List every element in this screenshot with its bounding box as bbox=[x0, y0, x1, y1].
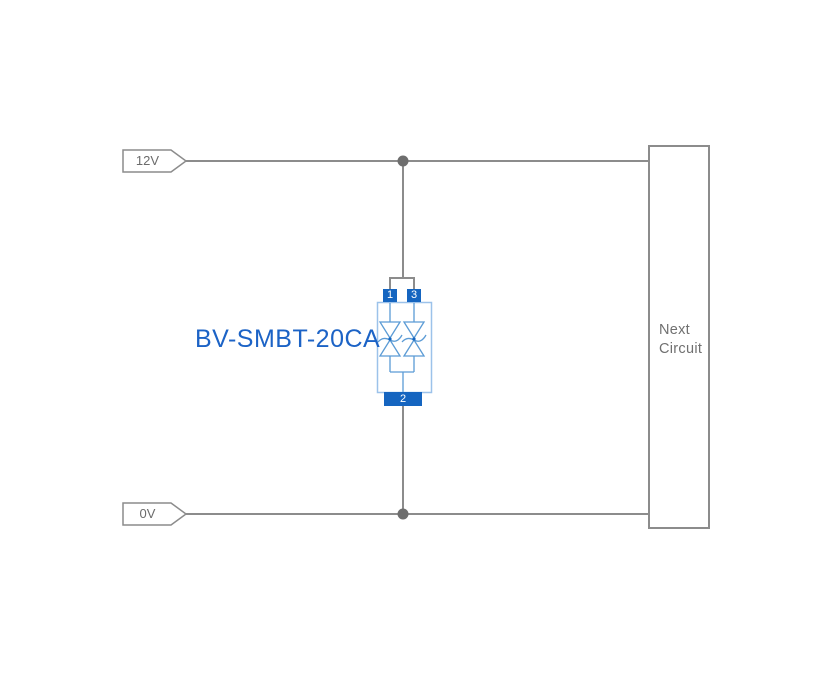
diode-left-junction bbox=[388, 337, 391, 340]
pin2-number: 2 bbox=[384, 392, 422, 406]
next-circuit-label-line2: Circuit bbox=[659, 340, 702, 359]
diode-right-junction bbox=[412, 337, 415, 340]
next-circuit-label: Next Circuit bbox=[659, 321, 702, 359]
circuit-diagram: 12V 0V BV-SMBT-20CA 1 3 2 Next Circuit bbox=[0, 0, 832, 675]
junction-dot-bottom bbox=[398, 509, 409, 520]
rail-label-12v: 12V bbox=[123, 150, 172, 172]
diagram-linework bbox=[0, 0, 832, 675]
pin3-number: 3 bbox=[407, 289, 421, 302]
pin1-number: 1 bbox=[383, 289, 397, 302]
next-circuit-label-line1: Next bbox=[659, 321, 702, 340]
junction-dot-top bbox=[398, 156, 409, 167]
component-part-number: BV-SMBT-20CA bbox=[195, 326, 380, 353]
rail-label-0v: 0V bbox=[123, 503, 172, 525]
